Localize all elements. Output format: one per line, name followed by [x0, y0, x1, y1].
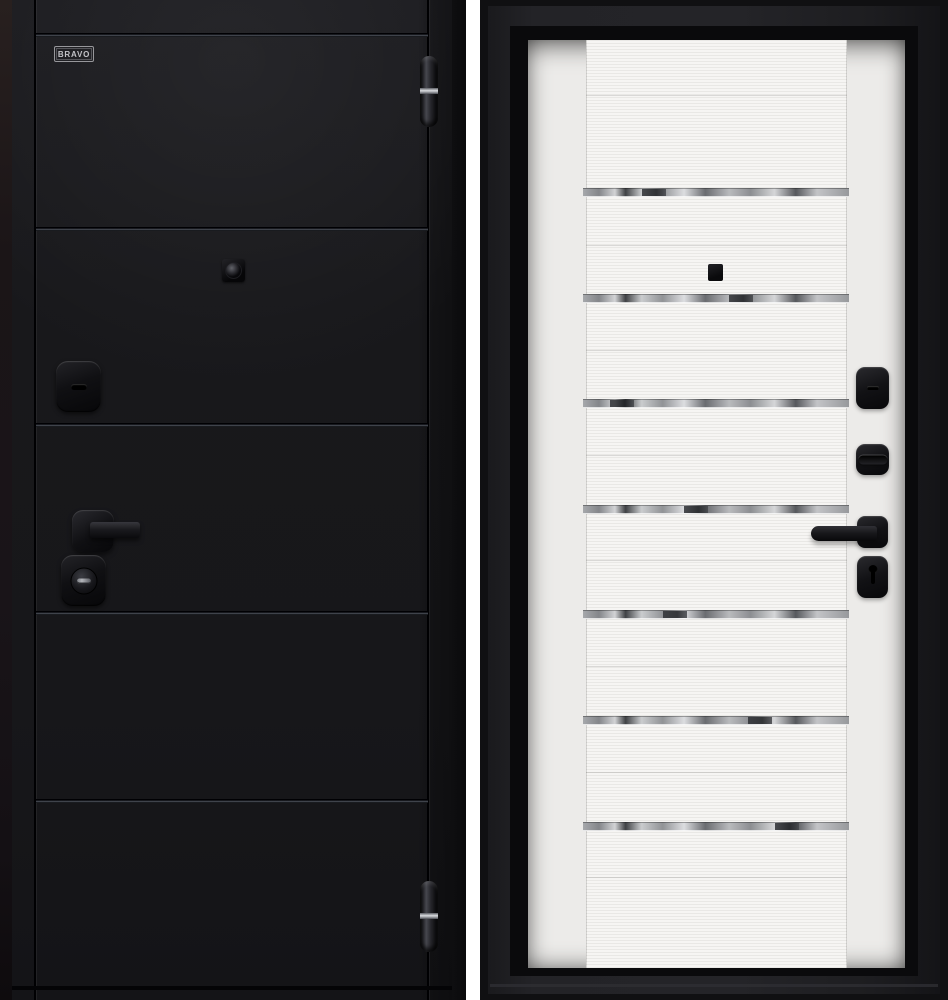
brand-logo: BRAVO	[54, 46, 94, 62]
panel-edge-line-right	[427, 0, 430, 1000]
glass-insert-strip	[583, 399, 849, 408]
hinge-bearing-band	[420, 913, 438, 919]
cylinder-keyway	[77, 578, 91, 583]
leaf-stile-right	[847, 40, 905, 968]
deadbolt-thumbturn	[856, 444, 889, 475]
door-jamb-right	[452, 0, 466, 1000]
glass-insert-strip	[583, 188, 849, 197]
brand-logo-label: BRAVO	[56, 48, 92, 60]
glass-insert-strip	[583, 610, 849, 619]
keyhole-slot	[71, 384, 87, 390]
hinge-bearing-band	[420, 88, 438, 94]
thumbturn-knob	[858, 455, 887, 464]
keyhole-escutcheon-interior	[857, 556, 888, 598]
door-hinge-bottom	[420, 881, 438, 952]
panel-groove	[36, 227, 428, 231]
panel-joint-line	[586, 245, 847, 246]
panel-groove	[36, 33, 428, 37]
door-leaf-edge-shading	[418, 0, 452, 1000]
glass-insert-strip	[583, 716, 849, 725]
panel-joint-line	[586, 560, 847, 561]
interior-door-view	[480, 0, 948, 1000]
exterior-door-view: BRAVO	[0, 0, 466, 1000]
panel-groove	[36, 423, 428, 427]
panel-joint-line	[586, 877, 847, 878]
peephole-viewer-interior	[708, 264, 723, 281]
lock-cylinder-escutcheon	[61, 555, 106, 606]
panel-joint-line	[586, 666, 847, 667]
upper-lock-escutcheon	[56, 361, 101, 412]
glass-insert-strip	[583, 294, 849, 303]
door-hinge-top	[420, 56, 438, 127]
panel-joint-line	[586, 455, 847, 456]
upper-lock-escutcheon-interior	[856, 367, 889, 409]
lever-handle-exterior	[90, 522, 140, 538]
keyhole-slot	[867, 386, 879, 390]
peephole-viewer	[222, 259, 245, 282]
door-frame-edge-left	[0, 0, 12, 1000]
door-leaf-exterior	[12, 0, 452, 1000]
door-frame-sill-highlight	[490, 984, 938, 987]
panel-joint-line	[586, 95, 847, 96]
door-leaf-interior	[528, 40, 905, 968]
lever-handle-interior	[811, 526, 877, 541]
panel-edge-line-left	[34, 0, 37, 1000]
panel-joint-line	[586, 772, 847, 773]
panel-groove	[36, 611, 428, 615]
keyhole-stem	[871, 571, 875, 584]
door-leaf-bottom-edge	[12, 986, 452, 990]
glass-insert-strip	[583, 822, 849, 831]
panel-joint-line	[586, 350, 847, 351]
peephole-lens	[225, 262, 242, 279]
glass-insert-strip	[583, 505, 849, 514]
panel-groove	[36, 799, 428, 803]
leaf-stile-left	[528, 40, 586, 968]
